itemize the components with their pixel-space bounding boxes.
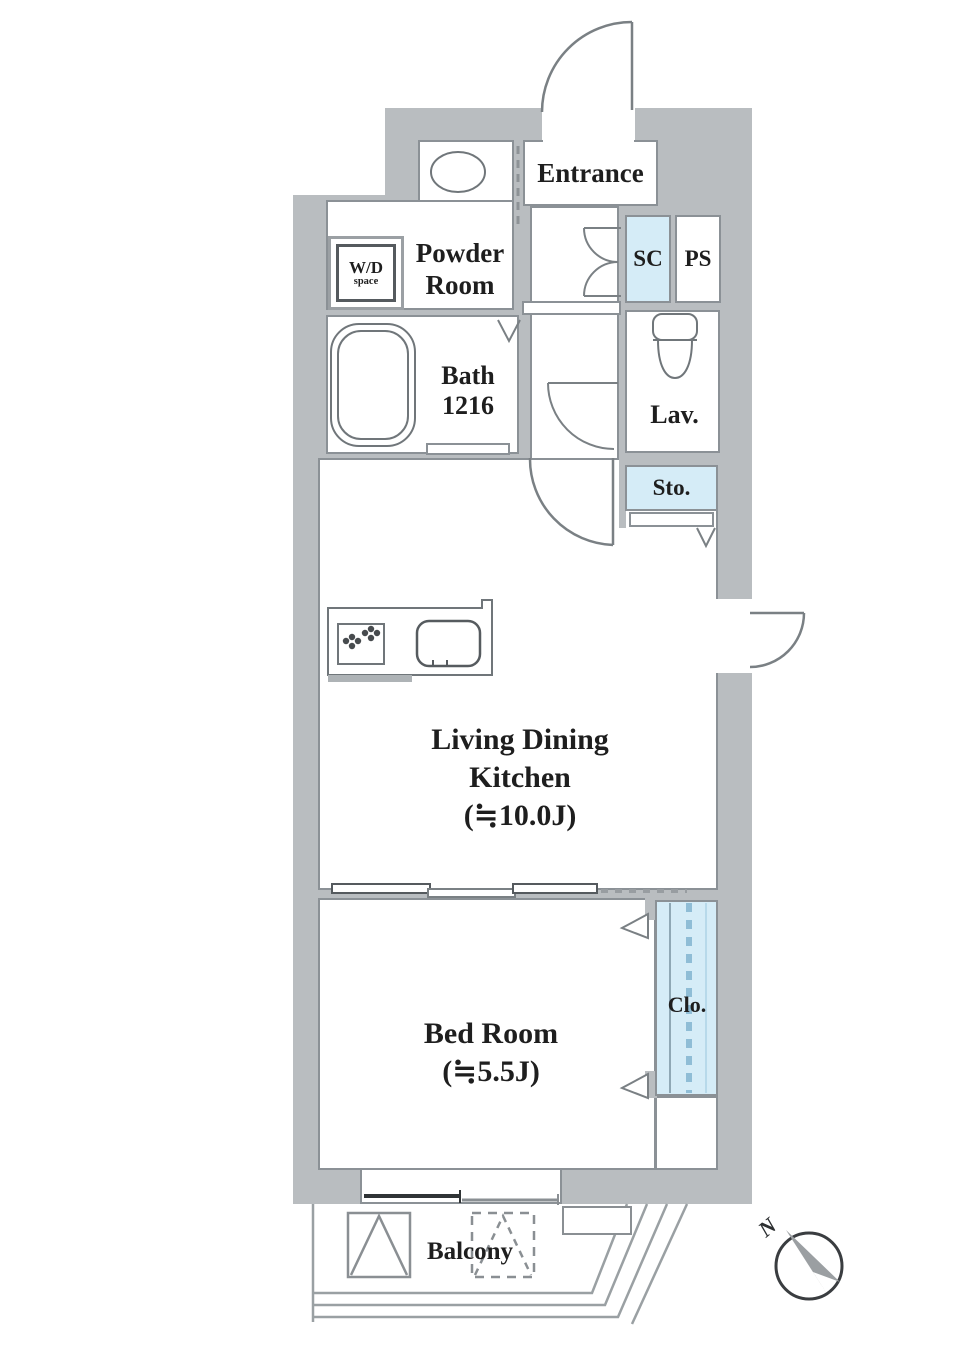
label-bedroom: Bed Room (≒5.5J) [311,1014,671,1092]
north-compass-icon: N [752,1212,842,1299]
floor-plan: W/D space [0,0,960,1360]
entrance-doorway-opening [542,104,635,144]
compass-north-label: N [752,1212,782,1243]
label-entrance: Entrance [523,140,658,206]
label-balcony: Balcony [370,1238,570,1266]
ldk-side-door-opening [716,599,754,673]
balcony-box [563,1207,631,1234]
label-shoe-closet: SC [625,215,671,303]
bedroom-window-bay [360,1168,562,1204]
entrance-door-icon [542,22,632,112]
label-powder-room: Powder Room [360,236,560,302]
label-storage: Sto. [625,465,718,511]
label-lavatory: Lav. [625,398,724,432]
label-closet: Clo. [650,991,724,1019]
area-below-closet [655,1096,718,1170]
room-powder-counter [418,140,514,202]
label-bath: Bath 1216 [398,360,538,422]
ldk-side-door-icon [750,613,804,667]
label-pipe-space: PS [675,215,721,303]
label-ldk: Living Dining Kitchen (≒10.0J) [320,720,720,836]
